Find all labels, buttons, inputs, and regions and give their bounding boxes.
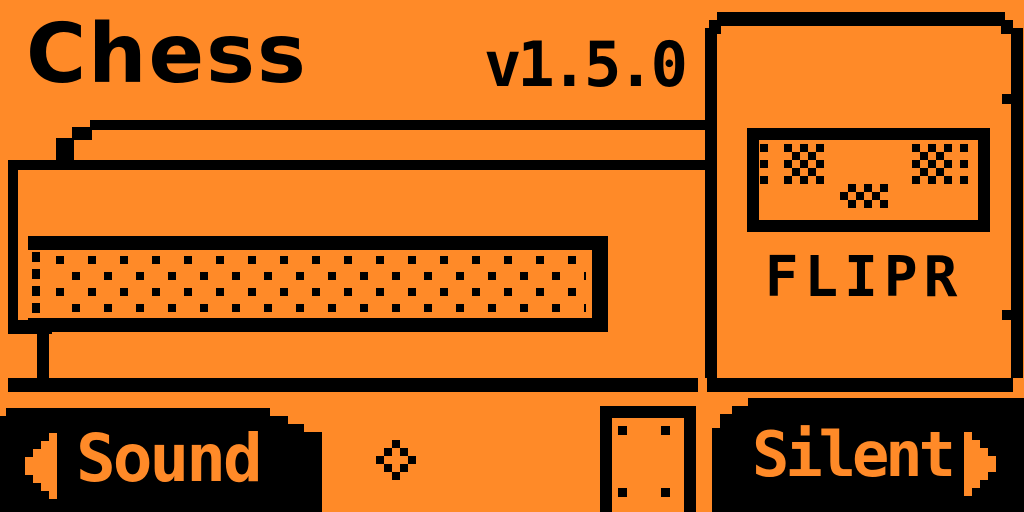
board-back-edge	[90, 120, 705, 130]
screw-icon	[618, 426, 627, 435]
mouth-checker	[840, 184, 888, 208]
left-dash-column	[760, 160, 768, 168]
table-shadow-line	[8, 378, 698, 392]
panel-side-bump	[1002, 310, 1012, 320]
board-dot-pattern	[50, 254, 586, 316]
screw-icon	[618, 488, 627, 497]
screen-frame-bottom	[747, 220, 990, 232]
leg-top-edge	[600, 406, 696, 418]
screen-frame-right	[978, 128, 990, 232]
pixel-art-layer	[0, 0, 1024, 512]
board-left-edge	[8, 160, 18, 334]
left-dash-column	[760, 144, 768, 152]
table-leg	[600, 406, 696, 512]
right-dash-column	[960, 160, 968, 168]
band-dash	[32, 286, 40, 296]
leg-left-edge	[600, 406, 612, 512]
screw-icon	[661, 488, 670, 497]
board-front-edge	[8, 160, 705, 170]
screen-frame-top	[747, 128, 990, 140]
dithered-robot-face	[760, 144, 968, 208]
panel-side-bump	[1002, 94, 1012, 104]
panel-bottom-border	[707, 378, 1013, 392]
ok-diamond-icon[interactable]	[376, 440, 416, 480]
band-dash	[32, 252, 40, 262]
panel-left-border	[705, 28, 717, 378]
band-dash	[32, 303, 40, 313]
band-bottom-border	[28, 318, 608, 332]
left-dash-column	[760, 176, 768, 184]
leg-right-edge	[684, 406, 696, 512]
lower-slab-left-edge	[37, 330, 49, 384]
chessboard-table-illustration	[8, 120, 705, 392]
device-screen	[747, 128, 990, 232]
left-eye-checker	[784, 144, 824, 184]
board-corner-step	[56, 138, 74, 162]
app-screen: Chess v1.5.0 FLIPR Sound Silent	[0, 0, 1024, 512]
panel-right-border	[1011, 28, 1023, 378]
right-dash-column	[960, 176, 968, 184]
board-corner-step	[72, 127, 92, 140]
screen-frame-left	[747, 128, 759, 232]
right-dash-column	[960, 144, 968, 152]
screw-icon	[661, 426, 670, 435]
band-right-cap	[592, 236, 608, 332]
panel-top-border	[717, 12, 1005, 26]
band-dash	[32, 269, 40, 279]
right-eye-checker	[912, 144, 952, 184]
band-top-border	[28, 236, 608, 250]
